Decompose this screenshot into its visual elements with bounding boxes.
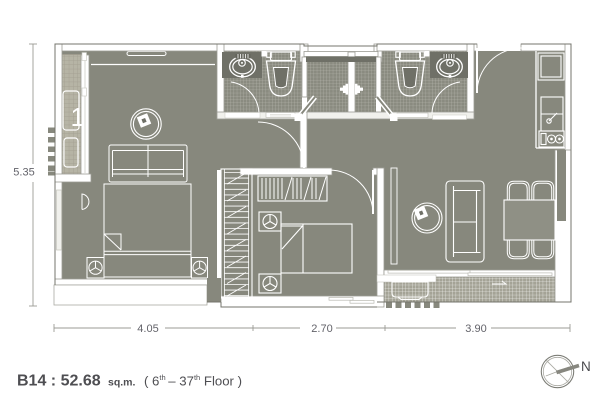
svg-text:4.05: 4.05 bbox=[137, 323, 158, 335]
svg-text:5.35: 5.35 bbox=[13, 167, 34, 179]
svg-text:1: 1 bbox=[71, 102, 85, 132]
svg-text:2.70: 2.70 bbox=[311, 323, 332, 335]
svg-text:3.90: 3.90 bbox=[465, 323, 486, 335]
svg-text:N: N bbox=[581, 359, 591, 374]
svg-text:( 6th – 37th Floor ): ( 6th – 37th Floor ) bbox=[144, 373, 242, 389]
svg-text:B14 : 52.68: B14 : 52.68 bbox=[17, 373, 101, 390]
svg-text:sq.m.: sq.m. bbox=[108, 377, 136, 389]
